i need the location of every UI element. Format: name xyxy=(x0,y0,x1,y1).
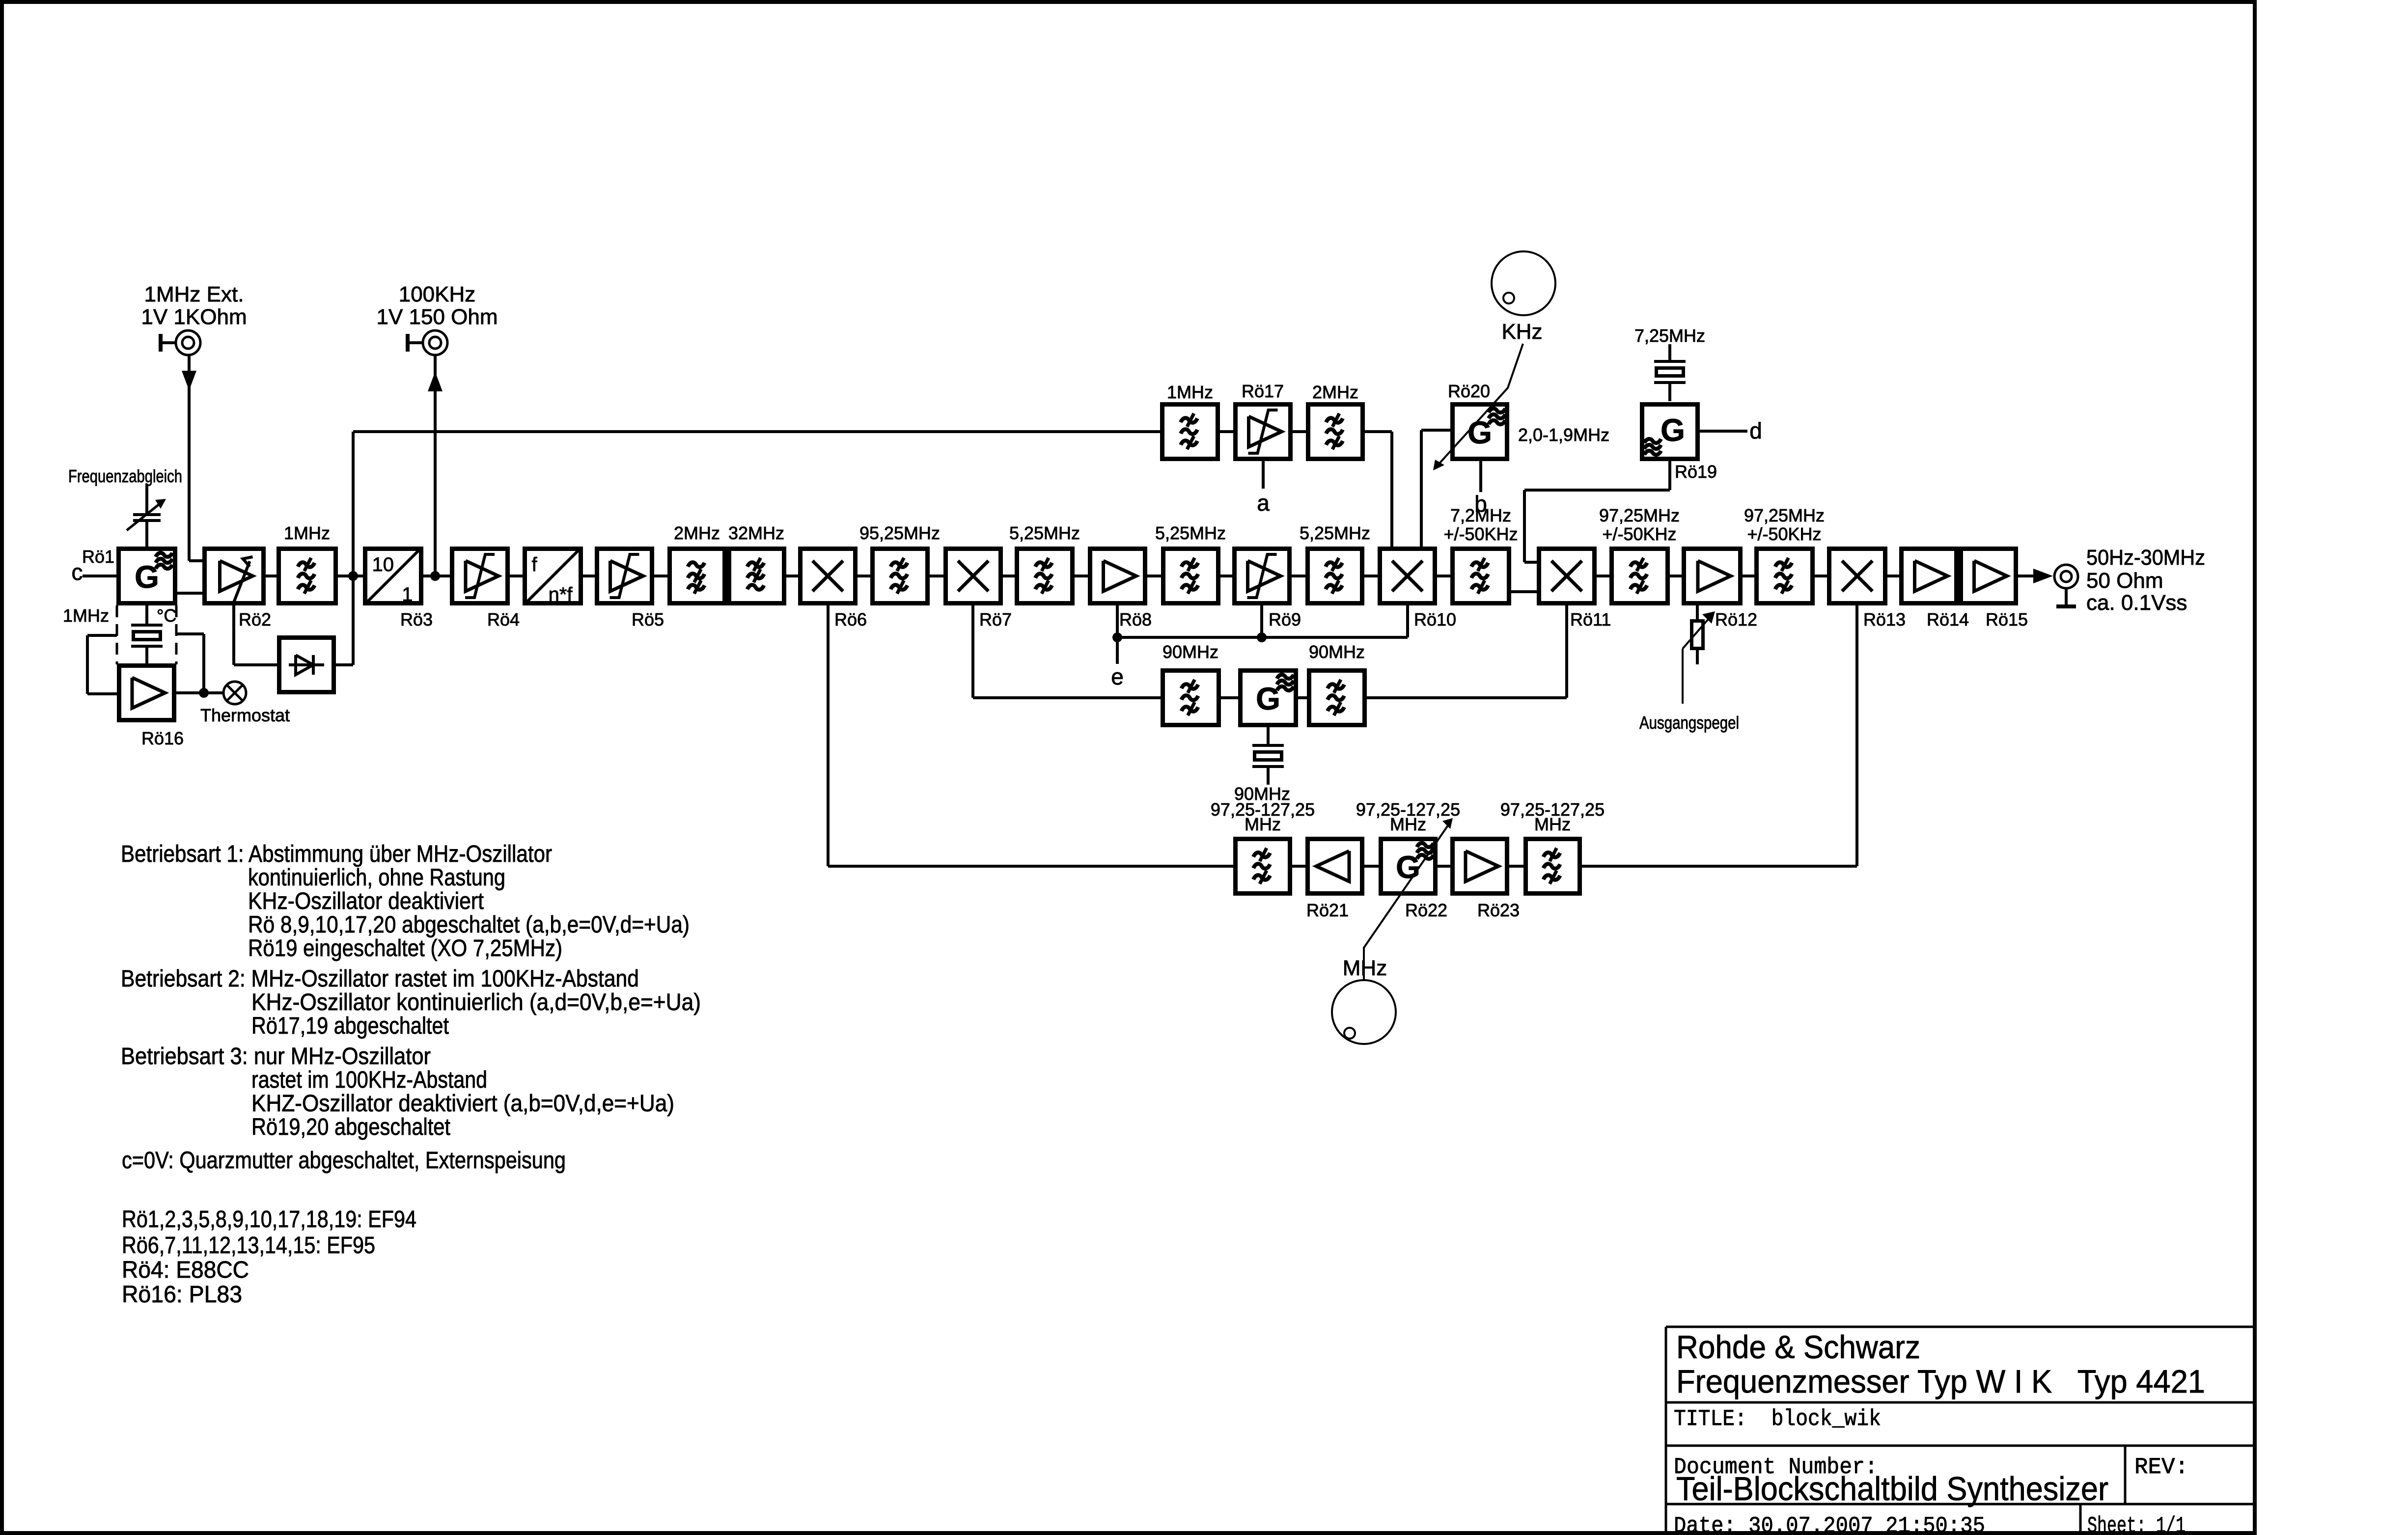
svg-text:7,25MHz: 7,25MHz xyxy=(1634,326,1705,346)
svg-text:Date: 30.07.2007 21:50:35: Date: 30.07.2007 21:50:35 xyxy=(1674,1513,1985,1535)
svg-text:Rö17: Rö17 xyxy=(1242,381,1284,401)
svg-text:1V 150 Ohm: 1V 150 Ohm xyxy=(376,305,498,329)
svg-text:MHz: MHz xyxy=(1245,814,1281,834)
svg-text:MHz: MHz xyxy=(1534,814,1571,834)
svg-text:Rö17,19 abgeschaltet: Rö17,19 abgeschaltet xyxy=(251,1013,449,1039)
svg-text:2,0-1,9MHz: 2,0-1,9MHz xyxy=(1518,425,1609,445)
svg-text:ca. 0.1Vss: ca. 0.1Vss xyxy=(2086,591,2187,615)
svg-text:10: 10 xyxy=(372,554,394,576)
svg-text:Teil-Blockschaltbild Synthesiz: Teil-Blockschaltbild Synthesizer xyxy=(1676,1470,2108,1508)
svg-text:Rö4: Rö4 xyxy=(487,609,520,630)
svg-text:Rö1,2,3,5,8,9,10,17,18,19: EF9: Rö1,2,3,5,8,9,10,17,18,19: EF94 xyxy=(122,1206,416,1233)
svg-text:Rö6,7,11,12,13,14,15: EF95: Rö6,7,11,12,13,14,15: EF95 xyxy=(122,1233,375,1259)
svg-text:Rö4: E88CC: Rö4: E88CC xyxy=(122,1257,249,1283)
svg-text:Betriebsart 3: nur MHz-Oszilla: Betriebsart 3: nur MHz-Oszillator xyxy=(121,1043,431,1069)
svg-text:Rö13: Rö13 xyxy=(1863,609,1906,630)
svg-text:90MHz: 90MHz xyxy=(1309,642,1365,662)
svg-text:Rö20: Rö20 xyxy=(1448,381,1490,401)
svg-text:n*f: n*f xyxy=(549,584,573,605)
svg-text:97,25MHz: 97,25MHz xyxy=(1599,505,1680,525)
svg-text:32MHz: 32MHz xyxy=(728,523,784,543)
svg-text:c=0V: Quarzmutter abgeschaltet: c=0V: Quarzmutter abgeschaltet, Externsp… xyxy=(122,1148,566,1174)
svg-text:G: G xyxy=(1661,412,1685,448)
svg-text:Rö16: Rö16 xyxy=(141,728,184,748)
svg-text:Rö5: Rö5 xyxy=(632,609,664,630)
svg-text:Rö22: Rö22 xyxy=(1405,900,1447,920)
svg-text:c: c xyxy=(72,559,83,585)
svg-text:REV:: REV: xyxy=(2134,1454,2188,1480)
svg-text:+/-50KHz: +/-50KHz xyxy=(1443,524,1518,544)
svg-text:1: 1 xyxy=(402,584,413,605)
svg-text:2MHz: 2MHz xyxy=(1312,382,1358,402)
svg-text:Ausgangspegel: Ausgangspegel xyxy=(1639,713,1739,733)
svg-text:Rö14: Rö14 xyxy=(1927,609,1969,630)
svg-text:Frequenzmesser Typ W I K Typ: Frequenzmesser Typ W I K Typ 4421 xyxy=(1676,1363,2205,1399)
svg-text:e: e xyxy=(1111,664,1124,689)
svg-text:Rö8: Rö8 xyxy=(1119,609,1152,630)
svg-text:f: f xyxy=(532,554,538,576)
svg-text:Rö10: Rö10 xyxy=(1414,609,1456,630)
svg-text:°C: °C xyxy=(157,605,176,626)
svg-text:Thermostat: Thermostat xyxy=(200,705,290,725)
svg-text:Betriebsart 1: Abstimmung über: Betriebsart 1: Abstimmung über MHz-Oszil… xyxy=(121,841,552,867)
svg-text:Rö11: Rö11 xyxy=(1570,609,1611,630)
svg-text:Rö1: Rö1 xyxy=(82,547,114,567)
svg-text:50Hz-30MHz: 50Hz-30MHz xyxy=(2086,546,2205,570)
svg-text:Rö16: PL83: Rö16: PL83 xyxy=(122,1282,242,1308)
svg-text:rastet im 100KHz-Abstand: rastet im 100KHz-Abstand xyxy=(251,1067,487,1093)
svg-text:Rö9: Rö9 xyxy=(1269,609,1301,630)
svg-text:+/-50KHz: +/-50KHz xyxy=(1602,524,1676,544)
svg-text:Rö3: Rö3 xyxy=(400,609,433,630)
svg-text:G: G xyxy=(1256,681,1280,716)
svg-text:5,25MHz: 5,25MHz xyxy=(1300,523,1370,543)
svg-text:5,25MHz: 5,25MHz xyxy=(1009,523,1080,543)
svg-text:50 Ohm: 50 Ohm xyxy=(2086,569,2163,593)
svg-text:1V 1KOhm: 1V 1KOhm xyxy=(141,305,247,329)
svg-text:a: a xyxy=(1257,490,1270,516)
svg-text:G: G xyxy=(1396,850,1420,885)
svg-text:Rö 8,9,10,17,20 abgeschaltet (: Rö 8,9,10,17,20 abgeschaltet (a,b,e=0V,d… xyxy=(248,912,690,938)
svg-text:KHz-Oszillator deaktiviert: KHz-Oszillator deaktiviert xyxy=(248,888,484,914)
svg-text:1MHz: 1MHz xyxy=(284,523,330,543)
svg-text:Rö23: Rö23 xyxy=(1477,900,1520,920)
svg-text:1MHz Ext.: 1MHz Ext. xyxy=(144,282,244,306)
svg-text:100KHz: 100KHz xyxy=(399,282,476,306)
svg-text:95,25MHz: 95,25MHz xyxy=(859,523,940,543)
svg-text:Rohde & Schwarz: Rohde & Schwarz xyxy=(1676,1329,1920,1365)
svg-text:90MHz: 90MHz xyxy=(1162,642,1218,662)
svg-text:d: d xyxy=(1749,418,1762,443)
svg-text:Rö19,20 abgeschaltet: Rö19,20 abgeschaltet xyxy=(251,1114,450,1140)
svg-text:Rö19: Rö19 xyxy=(1675,462,1717,482)
svg-text:Rö15: Rö15 xyxy=(1986,609,2028,630)
svg-text:Rö21: Rö21 xyxy=(1306,900,1349,920)
svg-text:1MHz: 1MHz xyxy=(1167,382,1213,402)
svg-text:5,25MHz: 5,25MHz xyxy=(1155,523,1226,543)
svg-text:KHz-Oszillator kontinuierlich: KHz-Oszillator kontinuierlich (a,d=0V,b,… xyxy=(251,989,701,1015)
svg-text:kontinuierlich, ohne Rastung: kontinuierlich, ohne Rastung xyxy=(248,865,505,891)
svg-text:Rö2: Rö2 xyxy=(239,609,271,630)
svg-text:+/-50KHz: +/-50KHz xyxy=(1747,524,1821,544)
svg-text:TITLE: block_wik: TITLE: block_wik xyxy=(1674,1406,1881,1432)
svg-text:Sheet: 1/1: Sheet: 1/1 xyxy=(2087,1513,2186,1535)
svg-text:KHZ-Oszillator deaktiviert (a,: KHZ-Oszillator deaktiviert (a,b=0V,d,e=+… xyxy=(251,1091,674,1117)
svg-text:97,25MHz: 97,25MHz xyxy=(1744,505,1825,525)
svg-text:Rö12: Rö12 xyxy=(1715,609,1757,630)
svg-text:Rö6: Rö6 xyxy=(834,609,867,630)
svg-text:Rö19 eingeschaltet (XO 7,25MHz: Rö19 eingeschaltet (XO 7,25MHz) xyxy=(248,935,562,961)
svg-text:Betriebsart 2: MHz-Oszillator: Betriebsart 2: MHz-Oszillator rastet im … xyxy=(121,966,639,992)
svg-text:Rö7: Rö7 xyxy=(979,609,1012,630)
svg-text:2MHz: 2MHz xyxy=(674,523,720,543)
svg-text:KHz: KHz xyxy=(1501,320,1542,344)
svg-text:G: G xyxy=(135,559,159,595)
svg-text:Frequenzabgleich: Frequenzabgleich xyxy=(68,466,182,486)
svg-text:MHz: MHz xyxy=(1343,956,1387,980)
svg-text:MHz: MHz xyxy=(1390,814,1426,834)
svg-text:b: b xyxy=(1474,491,1487,517)
svg-text:1MHz: 1MHz xyxy=(63,605,109,626)
